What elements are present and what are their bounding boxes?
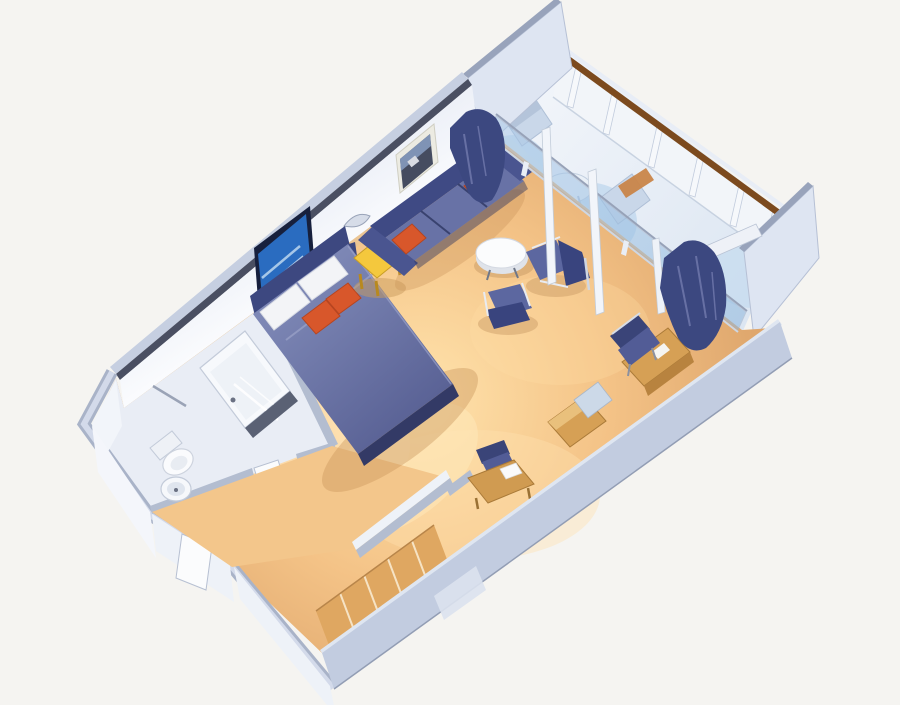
nightstand-leg bbox=[376, 281, 378, 296]
coffee-table bbox=[476, 238, 526, 268]
floorplan-canvas bbox=[0, 0, 900, 705]
bathtub-drain bbox=[231, 398, 236, 403]
suite-floorplan-svg bbox=[0, 0, 900, 705]
nightstand-leg bbox=[360, 274, 362, 289]
sink-drain bbox=[174, 488, 178, 492]
